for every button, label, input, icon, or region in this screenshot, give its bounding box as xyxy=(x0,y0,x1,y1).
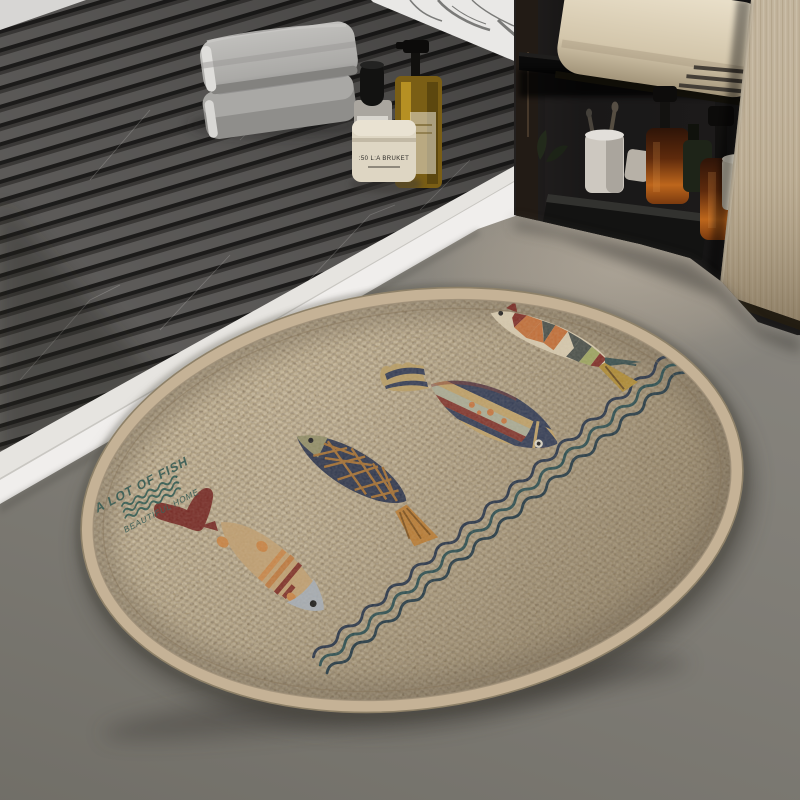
svg-text::50 L:A BRUKET: :50 L:A BRUKET xyxy=(359,156,409,162)
